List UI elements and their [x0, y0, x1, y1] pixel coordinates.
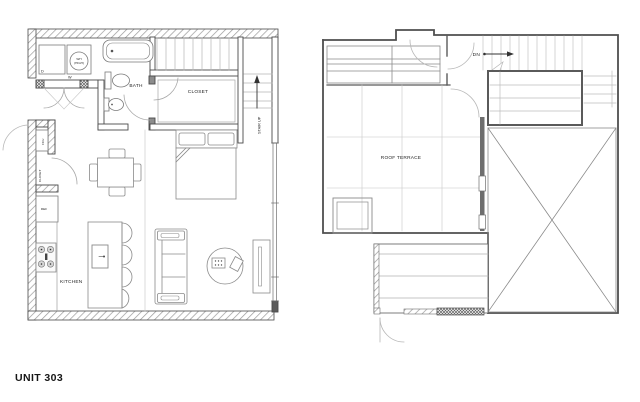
stair-up-corridor: STAIR UP: [244, 74, 272, 134]
terrace-planter-box: [333, 198, 372, 233]
bed: [176, 130, 237, 199]
stair-closet-wall: [150, 70, 240, 76]
bar-stools: [122, 223, 132, 308]
door-jamb: [149, 76, 155, 84]
living-room: [155, 229, 270, 304]
bath-west-wall: [98, 80, 104, 130]
toilet-bowl: [113, 74, 130, 87]
dining-chair: [109, 149, 125, 158]
kitchen-label: KITCHEN: [60, 279, 83, 285]
door-jamb: [36, 80, 44, 88]
door-jamb: [80, 80, 88, 88]
bulkhead-door-swing: [410, 40, 437, 67]
stair-up-label: STAIR UP: [258, 116, 262, 134]
roof-terrace-label: ROOF TERRACE: [381, 155, 421, 161]
stair-corridor-wall: [238, 37, 243, 143]
laundry-south-wall: [36, 80, 98, 88]
dining-set: [90, 149, 142, 196]
planter-dark-band: [437, 308, 484, 315]
sink-faucet: [111, 104, 113, 106]
window-right: [272, 143, 279, 301]
dining-table: [98, 158, 134, 187]
bathroom: BATH: [103, 40, 153, 120]
pillow: [208, 133, 234, 145]
unit-floor-plan: STAIR UP WH (HIGH) D W: [3, 29, 279, 320]
closet-label: CLOSET: [188, 89, 208, 95]
laundry-closet: WH (HIGH) D W: [39, 45, 91, 80]
tub-drain: [111, 50, 114, 53]
entry-closet-wall: [36, 185, 58, 192]
roof-below-area: [488, 128, 616, 312]
fcu-label: FCU: [41, 139, 45, 145]
terrace-east-wall: [479, 117, 486, 231]
laundry-double-doors: [44, 88, 84, 109]
kitchen: REF KITCHEN: [36, 196, 132, 311]
dn-label: DN: [473, 52, 481, 58]
wall-left-upper: [28, 29, 36, 78]
fcu-closet-wall: [48, 120, 55, 154]
wall-bottom: [28, 311, 274, 320]
stair-guardrail-box: [488, 71, 582, 125]
coffee-table: [207, 248, 243, 284]
wall-left-lower: [28, 120, 36, 320]
bath-label: BATH: [129, 83, 143, 89]
media-console: [253, 240, 270, 293]
stairs-upper-flight: [157, 38, 229, 70]
sofa: [155, 229, 187, 304]
closet-south-wall: [150, 124, 242, 130]
stair-side-treads: [584, 71, 616, 107]
roof-terrace: ROOF TERRACE: [327, 85, 486, 233]
stair-up-arrowhead: [254, 75, 260, 83]
coat-closet-door-swing: [52, 158, 77, 184]
roof-stairs-down: DN: [473, 36, 616, 125]
mattress: [176, 148, 236, 199]
pillow: [179, 133, 205, 145]
terrace-door-swing: [451, 89, 479, 117]
dining-chair: [109, 187, 125, 196]
bath-door-swing: [124, 95, 150, 120]
planter-wall-south: [404, 309, 437, 314]
wall-right-stub: [272, 301, 278, 312]
entry-closet-label: CLOSET: [38, 170, 42, 182]
closet-door-swing: [154, 78, 178, 100]
planter-wall-corner: [374, 308, 380, 314]
roof-planter-north: [327, 46, 440, 83]
roof-plan: DN: [323, 30, 618, 342]
planter-wall-west: [374, 244, 379, 313]
bedroom-closet: CLOSET: [154, 78, 235, 122]
refrigerator-label: REF: [41, 207, 47, 211]
books: [212, 258, 225, 268]
entry-area: FCU CLOSET: [3, 125, 77, 184]
dn-arrowhead: [507, 51, 514, 56]
landing-door-swing: [448, 43, 474, 69]
roof-planter-south: [374, 244, 488, 342]
closet-shelf-outline: [158, 80, 235, 122]
unit-title: UNIT 303: [15, 372, 63, 384]
water-heater-label-2: (HIGH): [74, 61, 84, 65]
stair-bulkhead: [327, 35, 479, 117]
dining-chair: [90, 164, 98, 181]
dining-chair: [133, 164, 141, 181]
wall-right-upper: [272, 37, 278, 143]
floor-plan-sheet: STAIR UP WH (HIGH) D W: [0, 0, 640, 402]
washer-label: W: [68, 76, 72, 80]
roof-access-door-swing: [380, 318, 404, 342]
bath-sink: [109, 99, 124, 111]
hall-south-wall: [98, 124, 128, 130]
dryer-label: D: [41, 70, 44, 74]
floor-plan-drawing: STAIR UP WH (HIGH) D W: [0, 0, 640, 402]
dn-arrow-dot: [483, 53, 486, 56]
toilet-tank: [105, 72, 111, 89]
entry-door-swing: [3, 125, 28, 150]
